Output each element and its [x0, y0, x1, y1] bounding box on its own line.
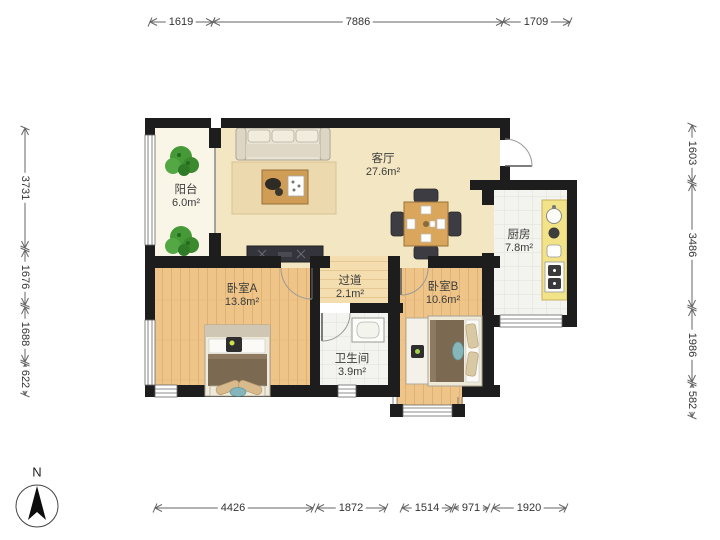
dim-right-1: 1603	[686, 138, 698, 168]
bedroom-a-side-window	[145, 320, 155, 385]
bed-a	[205, 325, 270, 397]
dim-bottom-4: 971	[459, 502, 483, 514]
sink-icon	[547, 209, 562, 224]
dim-top-3: 1709	[521, 16, 551, 28]
kitchen-counter	[542, 200, 567, 300]
kitchen-window	[500, 315, 562, 327]
sofa	[236, 128, 330, 160]
compass-north-label: N	[32, 465, 41, 480]
burner-icon	[549, 228, 560, 239]
compass	[16, 485, 58, 527]
dim-bottom-5: 1920	[514, 502, 544, 514]
dim-right-3: 1986	[686, 330, 698, 360]
dim-bottom-2: 1872	[336, 502, 366, 514]
floor-plan-page: N 阳台 6.0m² 客厅 27.6m² 厨房 7.8m² 卧室A 13.8m²…	[0, 0, 720, 540]
dim-bottom-3: 1514	[412, 502, 442, 514]
bathroom-vanity	[352, 318, 384, 342]
bed-b	[406, 316, 482, 386]
dim-right-4: 582	[686, 388, 698, 412]
dim-right-2: 3486	[686, 230, 698, 260]
dim-left-1: 3731	[19, 173, 31, 203]
dim-top-2: 7886	[343, 16, 373, 28]
dim-left-2: 1676	[19, 262, 31, 292]
top-wall-gap	[211, 118, 221, 128]
hallway-floor	[320, 256, 388, 303]
coffee-table	[262, 170, 308, 204]
dim-left-3: 1688	[19, 319, 31, 349]
floor-plan-drawing	[0, 0, 720, 540]
bedroom-a-bottom-window-1	[155, 385, 177, 397]
dim-left-4: 622	[19, 367, 31, 391]
bathroom-window	[338, 385, 356, 397]
bay-window	[403, 405, 452, 416]
entry-door-opening	[500, 140, 510, 166]
dim-bottom-1: 4426	[218, 502, 248, 514]
dim-top-1: 1619	[166, 16, 196, 28]
balcony-window	[145, 135, 155, 245]
